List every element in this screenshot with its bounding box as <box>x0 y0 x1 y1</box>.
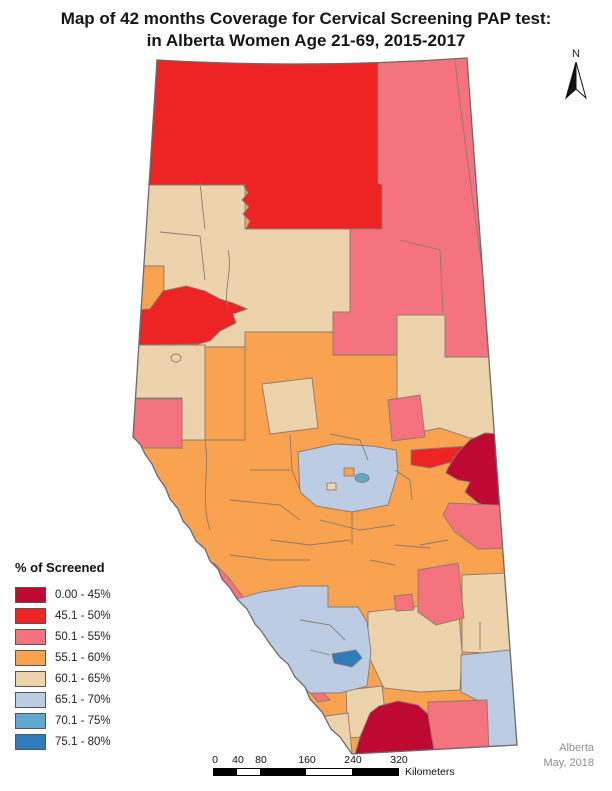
region-southeast-tan <box>462 572 530 655</box>
legend-label: 50.1 - 55% <box>55 631 111 643</box>
scale-unit-label: Kilometers <box>405 766 455 778</box>
credit-date: May, 2018 <box>543 756 594 771</box>
region-east-pink-2 <box>418 563 464 625</box>
legend-swatch-icon <box>15 692 46 708</box>
legend-label: 65.1 - 70% <box>55 694 111 706</box>
map-legend: % of Screened 0.00 - 45% 45.1 - 50% 50.1… <box>15 560 111 752</box>
scale-segment <box>260 769 306 775</box>
credit-region: Alberta <box>543 741 594 756</box>
scale-bar: 0 40 80 160 240 320 Kilometers <box>213 754 473 784</box>
map-page: Map of 42 months Coverage for Cervical S… <box>0 0 612 791</box>
legend-item: 55.1 - 60% <box>15 647 111 668</box>
legend-item: 0.00 - 45% <box>15 584 111 605</box>
scale-tick: 80 <box>255 754 267 766</box>
legend-swatch-icon <box>15 587 46 603</box>
scale-tick: 240 <box>344 754 362 766</box>
scale-bar-ticks: 0 40 80 160 240 320 <box>213 754 473 766</box>
region-south-tan-2 <box>305 713 352 753</box>
health-regions <box>100 40 545 760</box>
legend-swatch-icon <box>15 650 46 666</box>
region-central-pink <box>388 395 425 441</box>
region-central-tan <box>262 378 318 434</box>
legend-item: 65.1 - 70% <box>15 689 111 710</box>
legend-swatch-icon <box>15 629 46 645</box>
legend-label: 60.1 - 65% <box>55 673 111 685</box>
legend-item: 70.1 - 75% <box>15 710 111 731</box>
legend-item: 50.1 - 55% <box>15 626 111 647</box>
legend-item: 60.1 - 65% <box>15 668 111 689</box>
legend-swatch-icon <box>15 608 46 624</box>
region-south-pink <box>428 700 489 752</box>
scale-tick: 320 <box>390 754 408 766</box>
legend-item: 75.1 - 80% <box>15 731 111 752</box>
legend-label: 0.00 - 45% <box>55 589 111 601</box>
scale-tick: 0 <box>212 754 218 766</box>
map-credits: Alberta May, 2018 <box>543 741 594 771</box>
legend-label: 55.1 - 60% <box>55 652 111 664</box>
scale-bar-segments <box>213 768 399 776</box>
region-edmonton-speck-tan <box>327 483 336 490</box>
region-small-pink <box>394 594 414 611</box>
legend-swatch-icon <box>15 734 46 750</box>
scale-segment <box>214 769 237 775</box>
legend-label: 45.1 - 50% <box>55 610 111 622</box>
region-edmonton-speck-orange <box>344 468 354 476</box>
legend-swatch-icon <box>15 713 46 729</box>
legend-label: 75.1 - 80% <box>55 736 111 748</box>
scale-segment <box>352 769 398 775</box>
region-edmonton-blue <box>298 444 398 512</box>
region-edmonton-city-blue <box>355 474 369 483</box>
scale-tick: 40 <box>232 754 244 766</box>
legend-title: % of Screened <box>15 560 111 575</box>
legend-label: 70.1 - 75% <box>55 715 111 727</box>
scale-segment <box>306 769 352 775</box>
scale-segment <box>237 769 260 775</box>
region-westedge-pink <box>115 399 182 448</box>
legend-swatch-icon <box>15 671 46 687</box>
scale-tick: 160 <box>298 754 316 766</box>
legend-item: 45.1 - 50% <box>15 605 111 626</box>
